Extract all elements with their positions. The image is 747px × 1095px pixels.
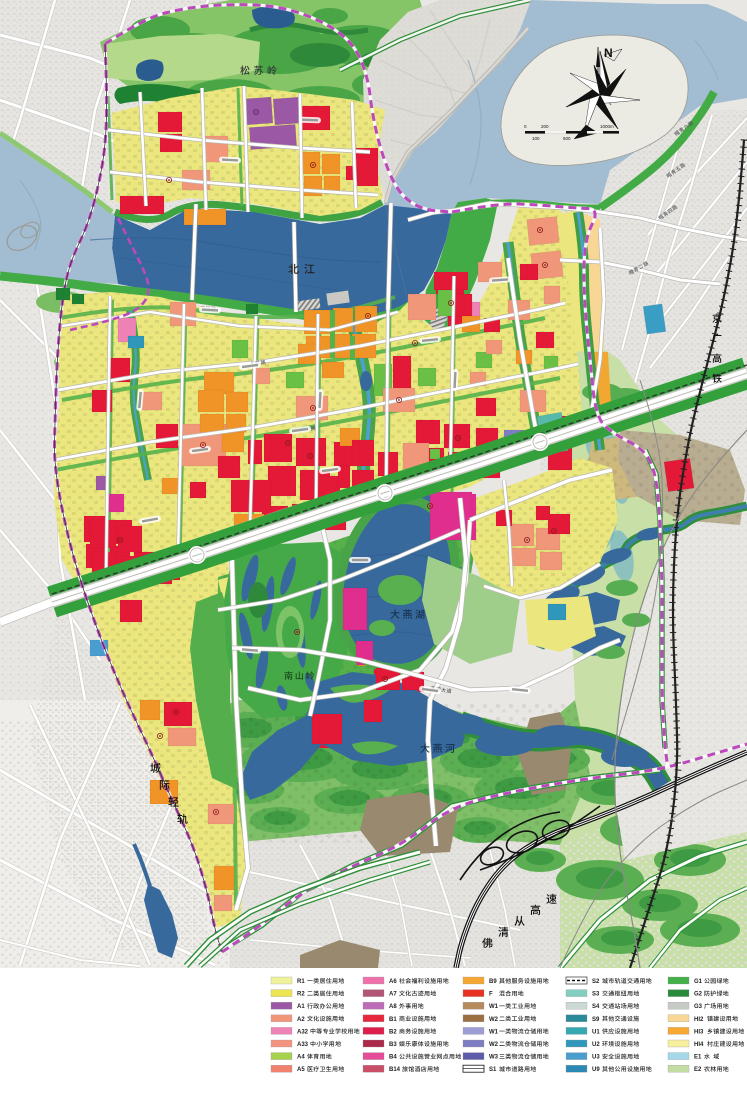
svg-text:B4: B4	[389, 1055, 397, 1061]
svg-text:HI3: HI3	[694, 1029, 704, 1035]
svg-text:S1: S1	[489, 1067, 497, 1073]
svg-text:1000m: 1000m	[600, 124, 614, 129]
svg-text:B1: B1	[389, 1017, 397, 1023]
svg-text:A6: A6	[389, 979, 397, 985]
svg-text:S9: S9	[592, 1017, 600, 1023]
svg-text:W3: W3	[489, 1055, 499, 1061]
svg-text:A8: A8	[389, 1004, 397, 1010]
svg-text:HI4: HI4	[694, 1042, 704, 1048]
svg-text:100: 100	[532, 136, 540, 141]
svg-text:U9: U9	[592, 1067, 600, 1073]
svg-text:W2: W2	[489, 1042, 499, 1048]
svg-text:B2: B2	[389, 1029, 397, 1035]
svg-text:E1: E1	[694, 1055, 702, 1061]
svg-text:500: 500	[563, 136, 571, 141]
svg-text:200: 200	[541, 124, 549, 129]
svg-text:G3: G3	[694, 1004, 703, 1010]
svg-text:N: N	[604, 46, 613, 60]
svg-text:G1: G1	[694, 979, 703, 985]
svg-text:U2: U2	[592, 1042, 600, 1048]
svg-text:R1: R1	[297, 979, 305, 985]
svg-text:W2: W2	[489, 1017, 499, 1023]
svg-text:S4: S4	[592, 1004, 600, 1010]
svg-text:A32: A32	[297, 1029, 309, 1035]
svg-text:S2: S2	[592, 979, 600, 985]
svg-text:B3: B3	[389, 1042, 397, 1048]
svg-text:HI2: HI2	[694, 1017, 704, 1023]
svg-text:B9: B9	[489, 979, 497, 985]
svg-text:E2: E2	[694, 1067, 702, 1073]
svg-text:A2: A2	[297, 1017, 305, 1023]
svg-text:B14: B14	[389, 1067, 401, 1073]
svg-text:S3: S3	[592, 992, 600, 998]
svg-text:G2: G2	[694, 992, 703, 998]
svg-text:A5: A5	[297, 1067, 305, 1073]
svg-text:R2: R2	[297, 992, 305, 998]
svg-text:A33: A33	[297, 1042, 309, 1048]
svg-text:A4: A4	[297, 1055, 305, 1061]
svg-text:A1: A1	[297, 1004, 305, 1010]
svg-text:W1: W1	[489, 1004, 499, 1010]
svg-text:U1: U1	[592, 1029, 600, 1035]
svg-text:U3: U3	[592, 1055, 600, 1061]
svg-text:A7: A7	[389, 992, 397, 998]
svg-text:W1: W1	[489, 1029, 499, 1035]
svg-text:F: F	[489, 992, 493, 998]
